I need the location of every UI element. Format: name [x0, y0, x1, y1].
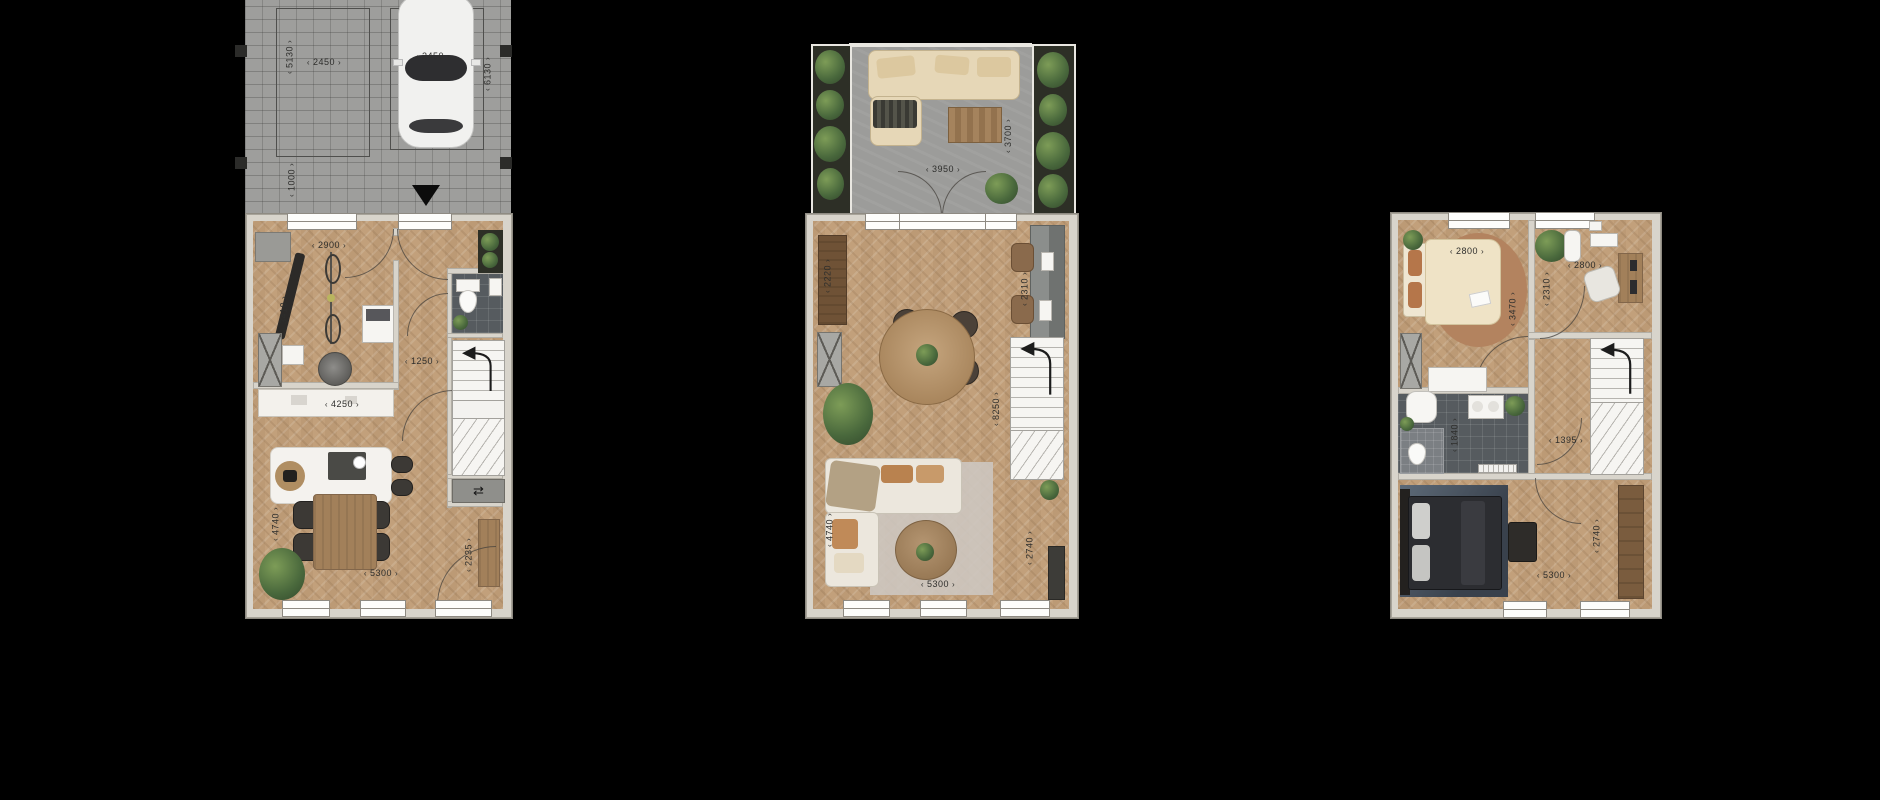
shelf: [282, 345, 304, 365]
window: [920, 600, 967, 617]
double-bed-dark: [1408, 496, 1502, 590]
washing-machine: [362, 305, 394, 343]
boiler: [318, 352, 352, 386]
window: [865, 213, 900, 230]
pillow: [1408, 250, 1422, 276]
dim-room-width: 5300: [912, 578, 964, 590]
table-plant: [916, 543, 934, 561]
dim-storage-width: 2900: [305, 239, 353, 251]
car-rear-window: [409, 119, 463, 133]
plant: [482, 252, 498, 268]
interior-wall: [1528, 220, 1535, 335]
dim-hall-width: 1250: [401, 355, 443, 367]
dim-living-width: 5300: [355, 567, 407, 579]
window: [1503, 601, 1547, 618]
sofa-cushion: [876, 55, 916, 79]
dim-right-depth: 2740: [1023, 529, 1036, 567]
plant: [1037, 52, 1069, 88]
stair-direction-arrow: [1595, 342, 1639, 398]
monitor: [1630, 260, 1637, 271]
dim-landing-width: 1395: [1544, 434, 1588, 446]
plan-bedroom-floor: 2800 3470 2800 2310 1840 1395 2740 5300: [1390, 212, 1660, 617]
bicycle: [325, 252, 337, 344]
stair-direction-arrow: [1015, 341, 1059, 399]
round-rug: [275, 461, 305, 491]
floor-plan-canvas: 5130 2450 1000 2450 6130: [0, 0, 1880, 800]
dim-room-depth: 8250: [989, 386, 1003, 432]
garden-door: [435, 600, 492, 617]
dim-bathroom-depth: 1840: [1448, 416, 1461, 454]
bar-stool: [1011, 243, 1034, 272]
window: [843, 600, 890, 617]
staircase-winder: [1010, 430, 1064, 480]
window: [1000, 600, 1050, 617]
meter-symbol-icon: ⇄: [473, 483, 484, 499]
plant: [1400, 417, 1414, 431]
round-dining-table: [879, 309, 975, 405]
oven-handle: [1041, 252, 1054, 271]
window: [282, 600, 330, 617]
entrance-arrow-icon: [412, 185, 440, 206]
dining-table: [313, 494, 377, 570]
window: [1580, 601, 1630, 618]
dim-parking-left-width: 2450: [301, 56, 347, 68]
planter-left: [811, 44, 852, 219]
terrace-chaise: [870, 96, 922, 146]
bar-stool: [391, 456, 413, 473]
terrace-edge: [849, 43, 1032, 47]
side-table: [1589, 221, 1602, 231]
throw-blanket: [873, 100, 917, 128]
fence-post: [235, 45, 247, 57]
ventilation-unit: [258, 333, 282, 387]
sofa-cushion: [934, 55, 969, 76]
stair-direction-arrow: [457, 344, 499, 396]
bicycle-saddle: [327, 294, 335, 302]
car-mirror: [393, 59, 403, 66]
window: [287, 213, 357, 230]
plant: [481, 233, 499, 251]
plant: [815, 50, 845, 84]
ventilation-unit: [1400, 333, 1422, 389]
dim-storage-depth: 3410: [277, 293, 290, 333]
tv-console: [1048, 546, 1065, 600]
bicycle-wheel: [325, 254, 341, 284]
pillow: [1408, 282, 1422, 308]
plant: [259, 548, 305, 600]
dim-bedroom3-width: 5300: [1528, 569, 1580, 581]
bench-ottoman: [1508, 522, 1537, 562]
desk: [1618, 253, 1643, 303]
car-top-view: [398, 0, 474, 148]
dim-terrace-width: 3950: [917, 163, 969, 175]
dim-parking-right-width: 2450: [410, 50, 456, 62]
pillow: [1412, 545, 1430, 581]
plant: [1403, 230, 1423, 250]
plant: [814, 126, 846, 162]
dim-bedroom1-width: 2800: [1442, 245, 1492, 257]
counter-item: [291, 395, 307, 405]
sofa-cushion: [977, 57, 1011, 77]
window: [360, 600, 406, 617]
palm-plant: [823, 383, 873, 445]
terrace-coffee-table: [948, 107, 1002, 143]
pillow: [1412, 503, 1430, 539]
plant: [1039, 94, 1067, 126]
plant: [985, 173, 1018, 204]
throw-blanket: [825, 460, 881, 513]
dim-bedroom2-width: 2800: [1560, 259, 1610, 271]
double-sink: [1468, 395, 1504, 419]
ventilation-unit: [817, 332, 842, 387]
dim-parking-left-depth: 5130: [283, 36, 296, 78]
fence-post: [235, 157, 247, 169]
dim-terrace-depth: 3700: [1001, 115, 1015, 157]
window: [985, 213, 1017, 230]
table-flowers: [916, 344, 938, 366]
interior-wall: [447, 333, 503, 338]
dresser: [1428, 367, 1487, 392]
dim-dining-depth: 4740: [269, 505, 282, 543]
washing-machine-top: [366, 309, 390, 321]
dim-parking-right-depth: 6130: [481, 54, 494, 94]
plant: [817, 168, 844, 200]
monitor: [1630, 280, 1637, 294]
chaise: [1564, 230, 1581, 262]
plant: [1505, 396, 1525, 416]
terrace-double-door: [898, 213, 987, 230]
plant: [816, 90, 844, 120]
towel-radiator: [1478, 464, 1517, 473]
fence-post: [500, 157, 512, 169]
bar-stool: [391, 479, 413, 496]
dim-sofa-depth: 4740: [823, 511, 836, 549]
dim-kitchen-depth: 2310: [1018, 269, 1031, 309]
terrace-sofa: [868, 50, 1020, 100]
window: [1535, 212, 1595, 229]
sofa-cushion: [834, 553, 864, 573]
staircase-winder: [1590, 402, 1644, 475]
kitchen-counter-wall: [1030, 225, 1065, 339]
sink: [353, 456, 366, 469]
wardrobe: [1618, 485, 1644, 599]
sofa-cushion: [881, 465, 913, 483]
entry-planter: [478, 230, 503, 273]
plant: [1036, 132, 1070, 170]
dim-entry-depth: 2235: [462, 536, 475, 574]
wall-shelf: [1590, 233, 1618, 247]
dim-bedroom3-depth: 2740: [1590, 516, 1603, 556]
plant: [1038, 174, 1068, 208]
bicycle-wheel: [325, 314, 341, 344]
dim-bedroom1-depth: 3470: [1506, 290, 1519, 328]
dim-left-wall: 2220: [821, 256, 834, 296]
basin: [1488, 401, 1499, 412]
sofa-cushion: [916, 465, 944, 483]
fence-post: [500, 45, 512, 57]
hand-basin: [489, 278, 502, 296]
plan-ground-floor: 5130 2450 1000 2450 6130: [245, 0, 511, 617]
plant: [453, 315, 468, 330]
plant: [1040, 480, 1059, 500]
bed-item: [1469, 290, 1491, 308]
corner-shelf: [255, 232, 291, 262]
blanket: [1461, 501, 1485, 585]
staircase-winder: [452, 418, 505, 476]
window: [1448, 212, 1510, 229]
dim-bedroom2-depth: 2310: [1540, 268, 1553, 310]
plan-living-floor: 3700 3950: [805, 43, 1077, 617]
car-mirror: [471, 59, 481, 66]
round-coffee-table: [895, 520, 957, 580]
appliance-handle: [1039, 300, 1052, 321]
dim-counter-width: 4250: [307, 398, 377, 410]
meter-cupboard: ⇄: [452, 479, 505, 503]
parking-spot-outline: [276, 8, 370, 157]
planter-right: [1032, 44, 1076, 219]
rug-item: [283, 470, 297, 482]
corner-sofa: [825, 458, 962, 514]
staircase-landing: [452, 400, 505, 420]
basin: [1472, 401, 1483, 412]
front-door: [398, 213, 452, 230]
dim-walkway: 1000: [285, 160, 298, 200]
interior-wall: [1528, 339, 1535, 480]
